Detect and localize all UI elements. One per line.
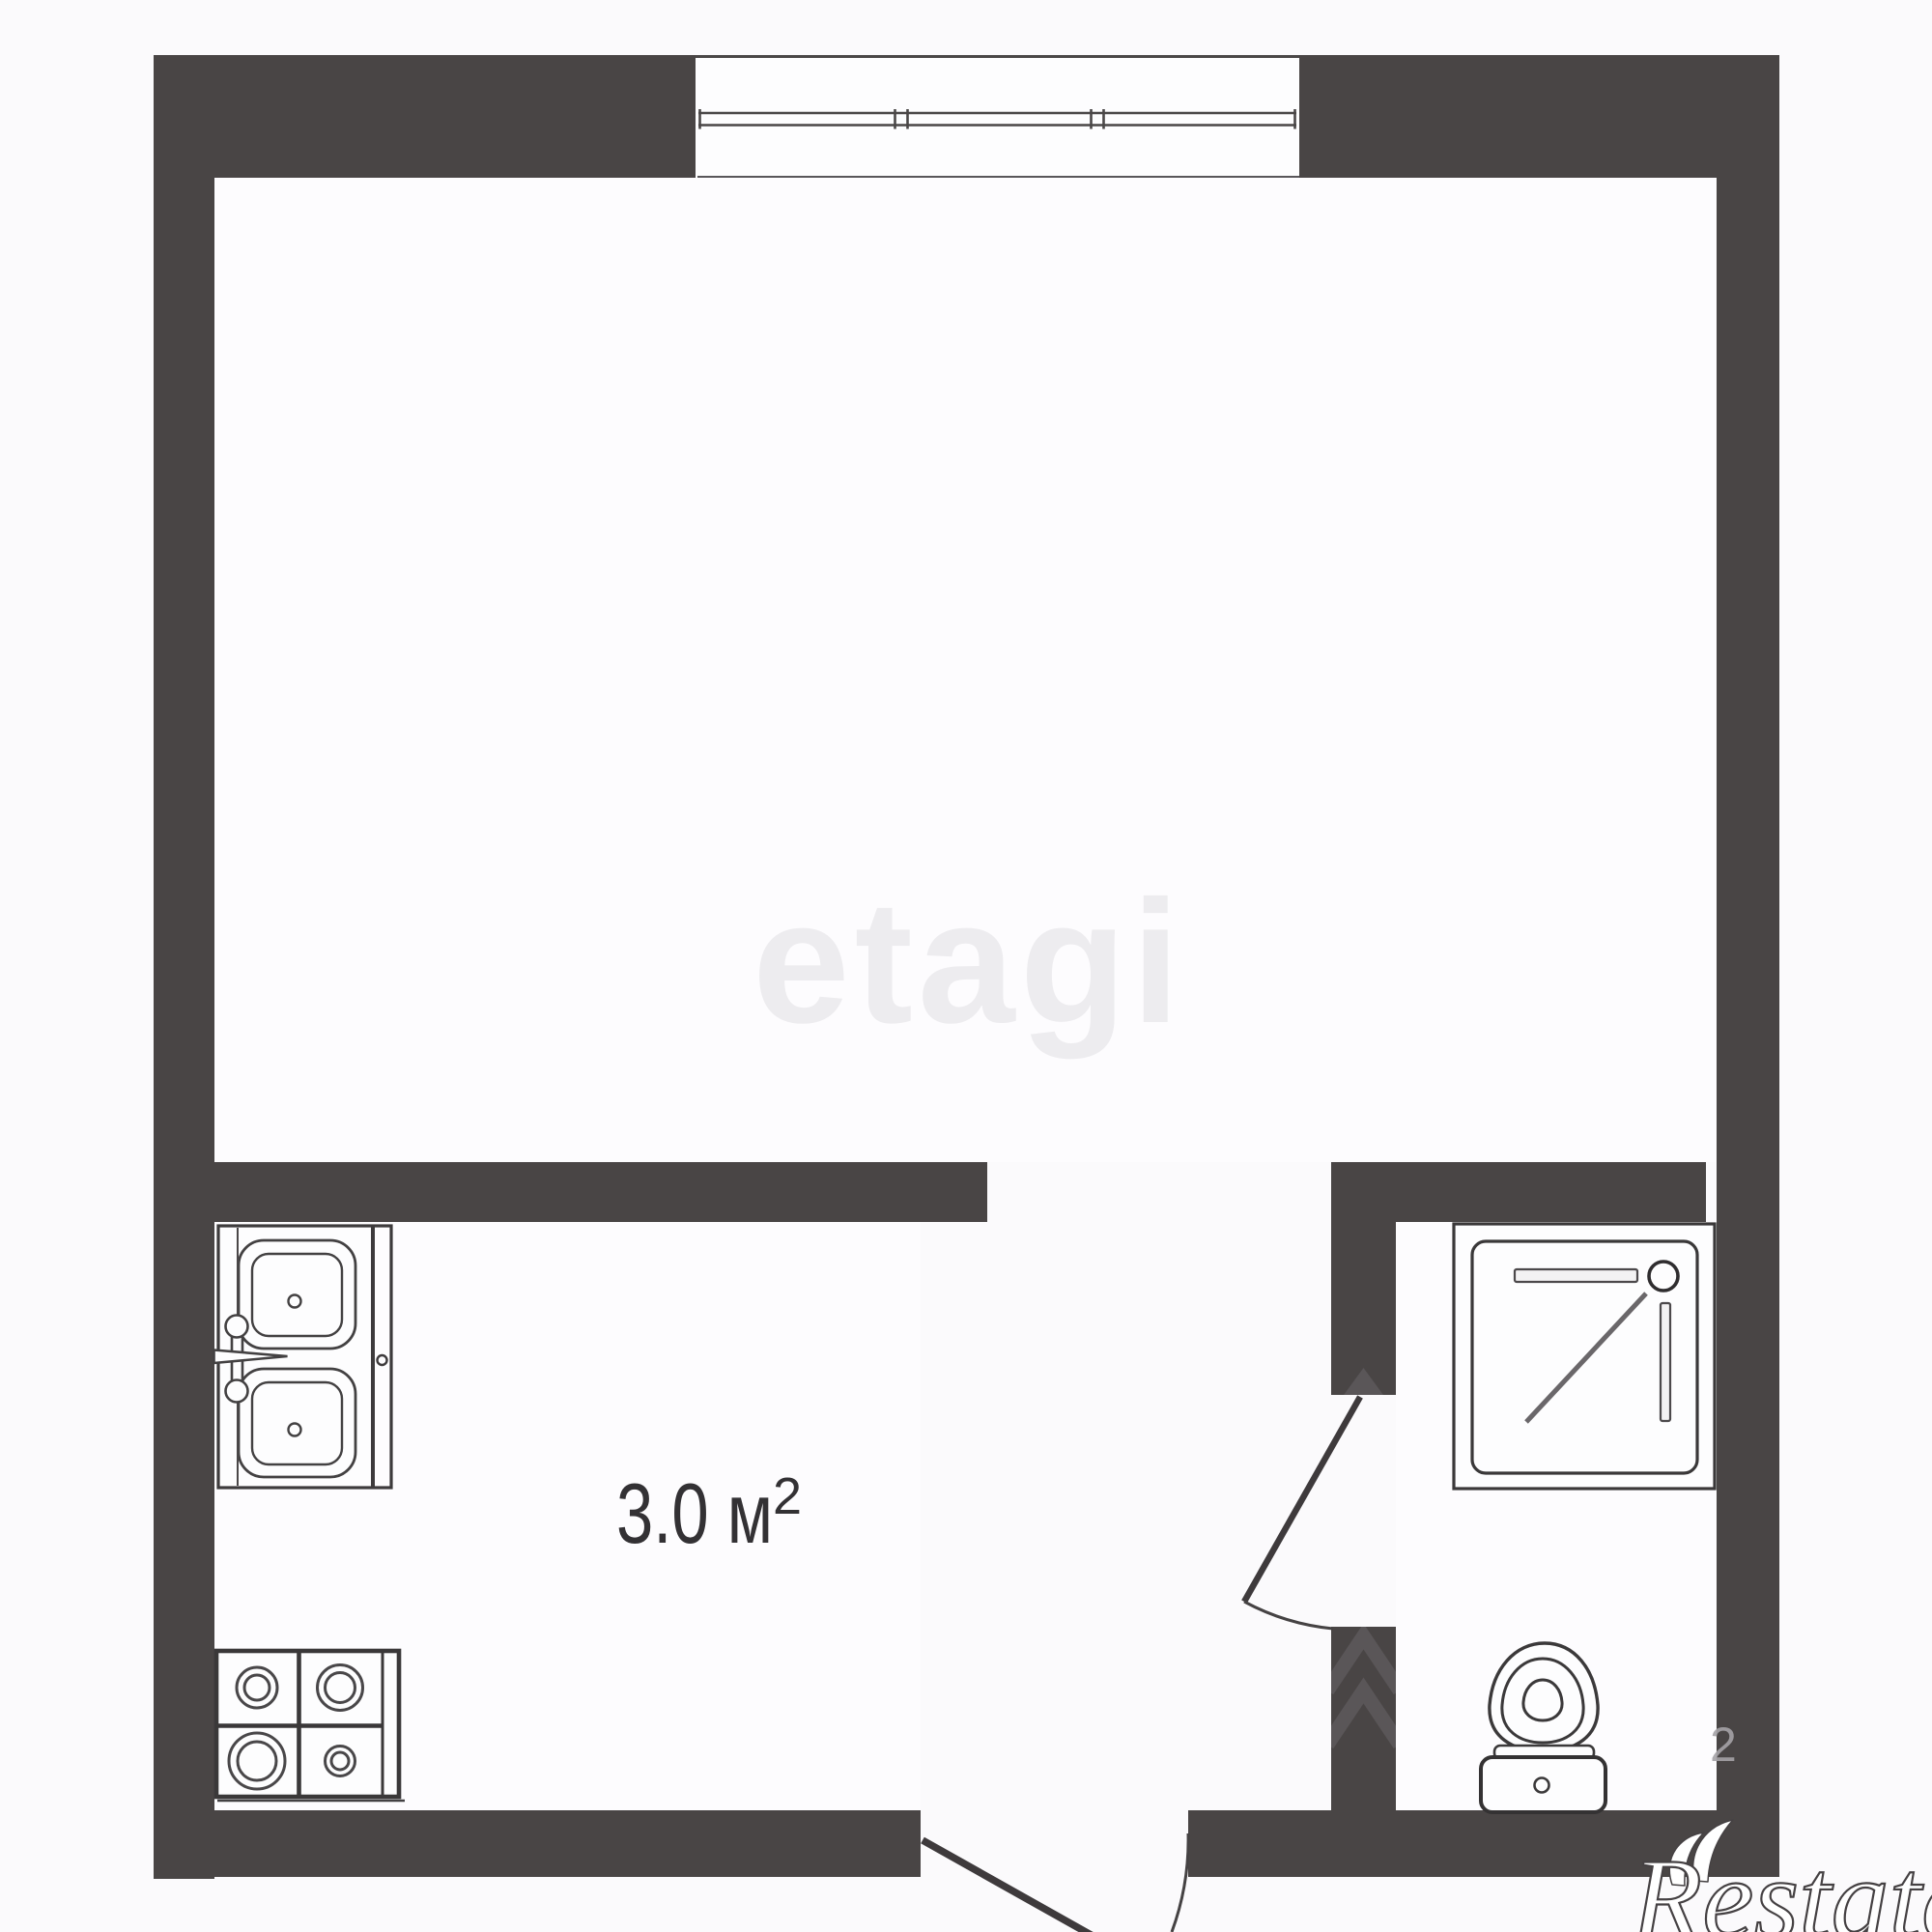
svg-text:Restate: Restate: [1631, 1834, 1932, 1932]
svg-text:2: 2: [1710, 1718, 1737, 1772]
svg-text:etagi: etagi: [753, 865, 1184, 1060]
svg-text:3.0 м: 3.0 м: [616, 1465, 773, 1561]
svg-text:2: 2: [773, 1467, 802, 1525]
